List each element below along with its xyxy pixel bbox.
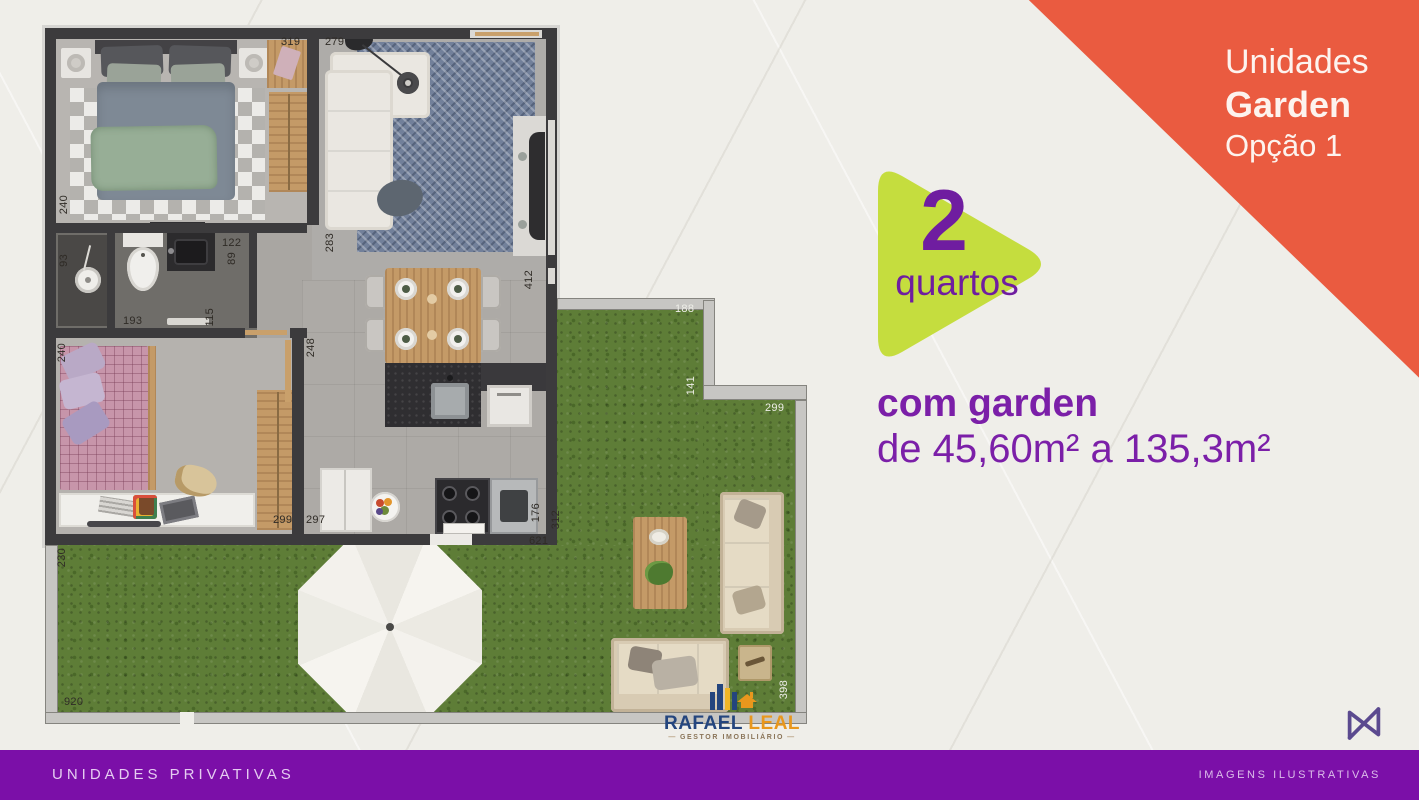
faucet xyxy=(168,248,174,254)
vase xyxy=(518,220,527,229)
dimension-label: 193 xyxy=(123,315,142,327)
island-sink xyxy=(431,383,469,419)
napkin xyxy=(427,294,437,304)
footer-left-text: UNIDADES PRIVATIVAS xyxy=(52,766,295,783)
dimension-label: 176 xyxy=(530,503,542,522)
handle xyxy=(497,393,521,396)
wall-bedroom2-kitchen xyxy=(292,338,304,535)
fruit-bowl xyxy=(370,492,400,522)
garden-coffee-table xyxy=(633,517,687,609)
dimension-label: 412 xyxy=(523,270,535,289)
dimension-label: 115 xyxy=(204,308,216,326)
napkin xyxy=(427,330,437,340)
garden-gate-gap xyxy=(180,712,194,724)
vase xyxy=(518,152,527,161)
brand-subtitle: GESTOR IMOBILIÁRIO xyxy=(648,734,816,741)
dining-table xyxy=(385,268,481,364)
dimension-label: 240 xyxy=(56,343,68,362)
dining-chair xyxy=(481,318,501,352)
unit-badge: Unidades Garden Opção 1 xyxy=(1225,42,1369,165)
brand-name-part1: RAFAEL xyxy=(664,713,743,734)
plate xyxy=(395,328,417,350)
desk-mat xyxy=(87,521,161,527)
garden-side-table xyxy=(738,645,772,681)
dimension-label: 230 xyxy=(56,548,68,567)
food xyxy=(454,335,462,343)
dimension-label: 299 xyxy=(765,402,784,414)
shower-stall xyxy=(58,235,113,326)
rack-pole xyxy=(288,94,290,190)
lamp xyxy=(245,54,263,72)
fruit xyxy=(376,508,383,515)
apartment-block xyxy=(45,28,557,545)
towel-bar xyxy=(167,318,209,325)
dimension-label: 283 xyxy=(324,233,336,252)
dimension-label: 297 xyxy=(306,514,325,526)
footer-right-text: IMAGENS ILUSTRATIVAS xyxy=(1199,769,1381,781)
dimension-label: 89 xyxy=(226,252,238,265)
shower-center xyxy=(85,277,91,283)
garden-description-bold: com garden xyxy=(877,382,1271,426)
vanity-sink xyxy=(174,239,208,265)
vanity xyxy=(167,233,215,271)
shower-head xyxy=(75,267,101,293)
garden-wall-right xyxy=(795,400,807,724)
dishwasher xyxy=(487,385,532,427)
kitchen-cabinet xyxy=(320,468,372,532)
garden-door-gap xyxy=(430,534,472,545)
dimension-label: 621 xyxy=(529,535,548,547)
dimension-label: 141 xyxy=(685,376,697,395)
floor-plan: 319 279 240 122 89 283 412 93 193 115 24… xyxy=(45,28,857,740)
toilet xyxy=(123,233,163,293)
nightstand-left xyxy=(61,48,91,78)
blanket xyxy=(90,125,217,191)
wall-hall-stub xyxy=(290,328,307,338)
dimension-label: 279 xyxy=(325,36,344,48)
garden-description: com garden de 45,60m² a 135,3m² xyxy=(877,382,1271,472)
oven-door xyxy=(500,490,528,522)
dining-chair xyxy=(365,318,385,352)
entry-door xyxy=(475,32,539,36)
garden-grass-upper xyxy=(557,310,703,545)
toilet-bowl xyxy=(127,247,159,291)
window-right-small xyxy=(548,268,555,284)
bed-single-frame xyxy=(148,346,156,490)
wall-bath-bottom xyxy=(56,328,245,338)
dimension-label: 93 xyxy=(58,254,70,267)
decor-box xyxy=(273,46,301,81)
decor xyxy=(745,656,766,667)
food xyxy=(402,285,410,293)
fruit xyxy=(384,498,392,506)
plate xyxy=(395,278,417,300)
plate xyxy=(447,328,469,350)
garden-wall-step xyxy=(703,385,807,400)
n-brand-icon xyxy=(1342,703,1386,744)
dining-chair xyxy=(365,275,385,309)
unit-badge-line3: Opção 1 xyxy=(1225,127,1369,165)
toilet-tank xyxy=(123,233,163,247)
laptop xyxy=(159,495,199,524)
bathroom-door xyxy=(245,330,287,335)
unit-badge-line1: Unidades xyxy=(1225,42,1369,83)
pegboard xyxy=(133,495,157,519)
bed-double xyxy=(95,40,237,200)
island-faucet xyxy=(447,375,453,381)
nightstand-right xyxy=(239,48,269,78)
dimension-label: 920 xyxy=(64,696,83,708)
wall-left xyxy=(45,28,56,545)
toilet-dot xyxy=(141,253,145,257)
bedroom-count-label: quartos xyxy=(862,262,1052,304)
window-right xyxy=(548,120,555,255)
wall-bedroom1-living xyxy=(307,28,319,225)
wall-bedroom1-bath xyxy=(56,223,307,233)
unit-badge-line2: Garden xyxy=(1225,83,1369,127)
wall-shower xyxy=(107,233,115,328)
bedroom-count: 2 xyxy=(868,172,1020,271)
burner xyxy=(442,486,457,501)
dimension-label: 312 xyxy=(550,510,562,529)
clothes-rack xyxy=(269,92,309,192)
brand-skyline-icon xyxy=(704,680,760,710)
brand-logo: RAFAEL LEAL GESTOR IMOBILIÁRIO xyxy=(648,680,816,748)
kitchen-island xyxy=(385,363,481,427)
dimension-label: 188 xyxy=(675,303,694,315)
sideboard-tray xyxy=(529,132,545,240)
door-plate xyxy=(443,523,485,534)
dimension-label: 240 xyxy=(58,195,70,214)
wall-right xyxy=(546,28,557,545)
garden-description-range: de 45,60m² a 135,3m² xyxy=(877,426,1271,472)
dish xyxy=(649,529,669,545)
wall-bottom xyxy=(45,534,557,545)
burner xyxy=(465,486,480,501)
dimension-label: 299 xyxy=(273,514,292,526)
dimension-label: 319 xyxy=(281,36,300,48)
dimension-label: 248 xyxy=(305,338,317,357)
dining-chair xyxy=(481,275,501,309)
plant xyxy=(645,561,673,585)
wardrobe-pole xyxy=(277,392,279,528)
garden-wall-left xyxy=(45,545,58,724)
floor-lamp-shade xyxy=(397,72,419,94)
brand-name-part2: LEAL xyxy=(748,713,800,734)
desk xyxy=(59,493,255,527)
plate xyxy=(447,278,469,300)
lamp xyxy=(67,54,85,72)
brand-name: RAFAEL LEAL xyxy=(648,715,816,733)
lamp-bulb xyxy=(405,80,411,86)
sideboard xyxy=(513,116,547,256)
garden-sofa-right xyxy=(720,492,784,634)
bedroom2-door xyxy=(285,340,291,402)
food xyxy=(454,285,462,293)
umbrella-pole xyxy=(386,623,394,631)
dimension-label: 122 xyxy=(222,237,241,249)
footer-bar: UNIDADES PRIVATIVAS IMAGENS ILUSTRATIVAS xyxy=(0,750,1419,800)
wall-bath-hall xyxy=(249,233,257,328)
food xyxy=(402,335,410,343)
